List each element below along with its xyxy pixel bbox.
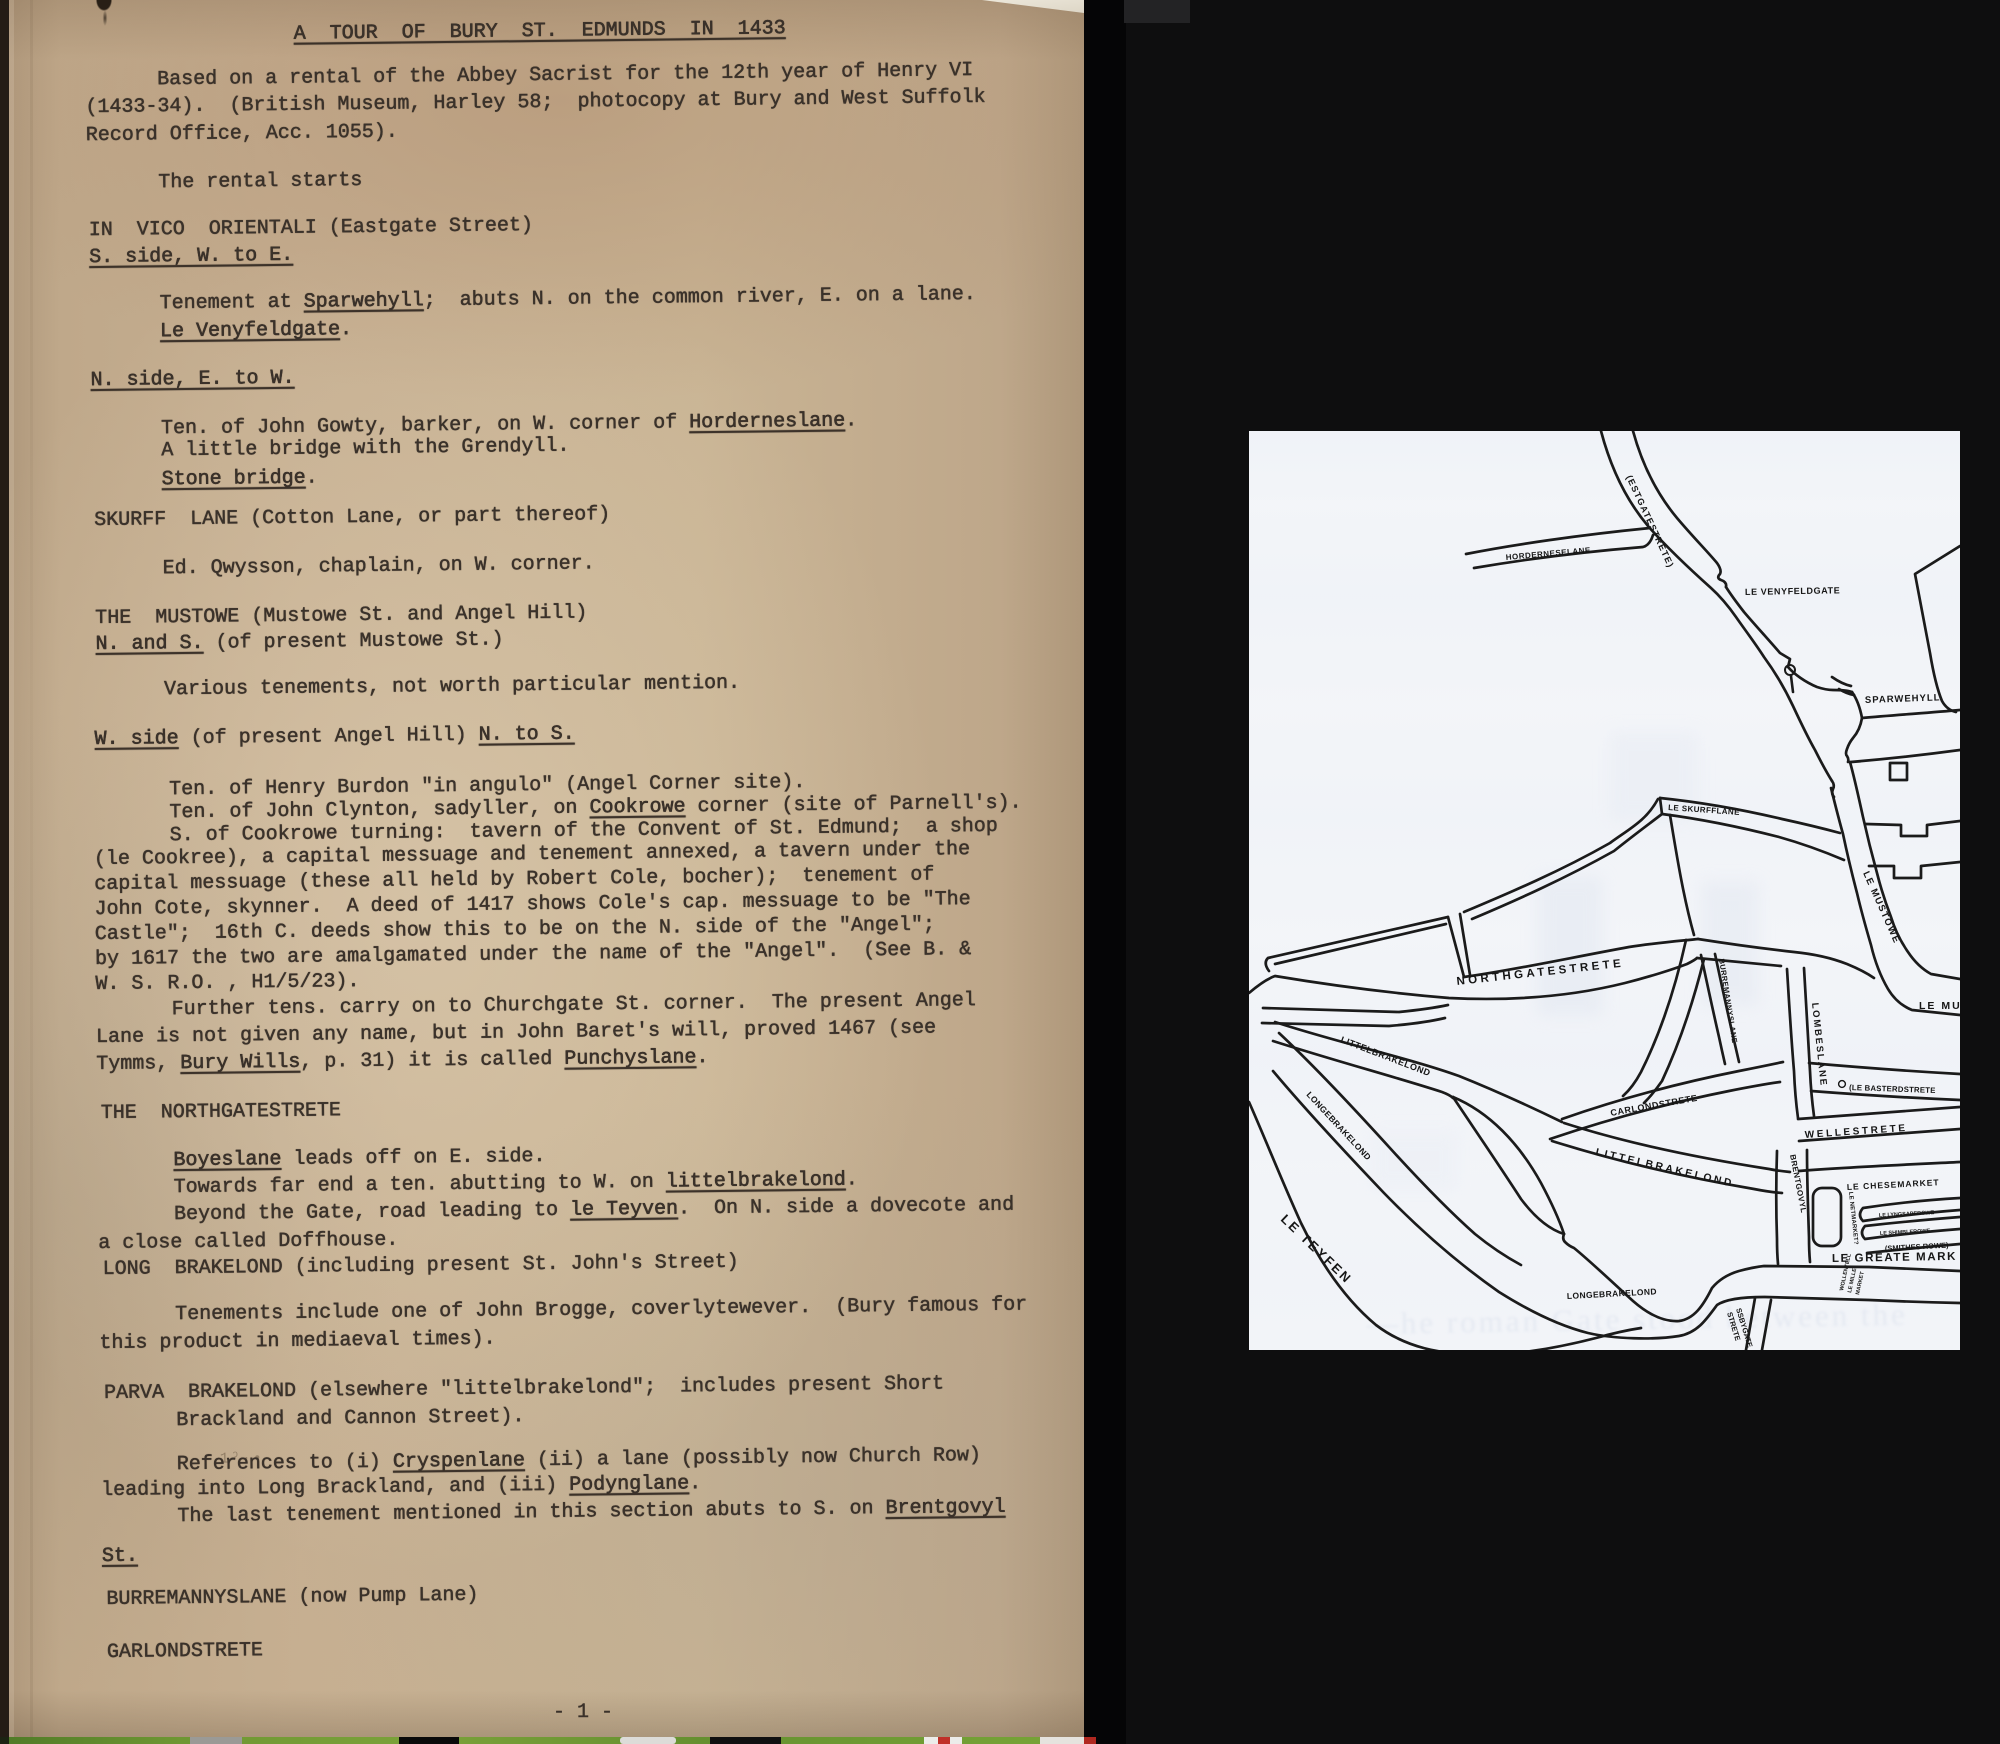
svg-text:LE VENYFELDGATE: LE VENYFELDGATE xyxy=(1745,585,1841,597)
svg-text:LE MU: LE MU xyxy=(1919,1000,1960,1012)
